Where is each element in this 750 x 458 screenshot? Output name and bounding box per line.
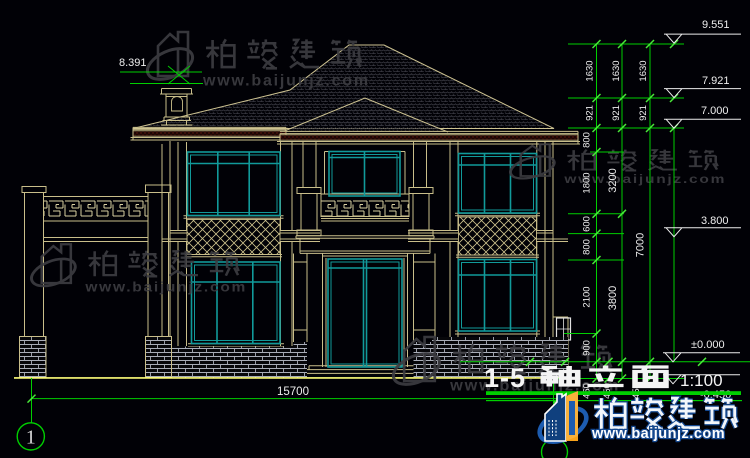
svg-text:921: 921 xyxy=(611,105,622,121)
svg-text:±0.000: ±0.000 xyxy=(691,339,725,351)
svg-text:800: 800 xyxy=(582,239,593,255)
svg-text:www.baijunjz.com: www.baijunjz.com xyxy=(591,426,725,442)
svg-text:2100: 2100 xyxy=(582,286,593,307)
svg-text:800: 800 xyxy=(582,132,593,148)
svg-text:1800: 1800 xyxy=(582,172,593,193)
svg-text:900: 900 xyxy=(582,340,593,356)
svg-text:600: 600 xyxy=(582,216,593,232)
svg-text:3.800: 3.800 xyxy=(701,215,729,227)
svg-text:3200: 3200 xyxy=(607,168,619,192)
svg-text:1630: 1630 xyxy=(611,60,622,81)
svg-text:7.921: 7.921 xyxy=(702,75,730,87)
svg-text:7000: 7000 xyxy=(635,233,647,257)
svg-text:1630: 1630 xyxy=(638,60,649,81)
svg-text:15700: 15700 xyxy=(277,386,309,398)
svg-text:921: 921 xyxy=(638,105,649,121)
svg-text:1-5: 1-5 xyxy=(484,363,526,393)
svg-text:9.551: 9.551 xyxy=(702,19,730,31)
svg-text:1:100: 1:100 xyxy=(680,371,723,390)
svg-text:8.391: 8.391 xyxy=(119,57,147,69)
svg-text:7.000: 7.000 xyxy=(701,105,729,117)
svg-text:1630: 1630 xyxy=(585,60,596,81)
svg-text:1: 1 xyxy=(26,427,36,449)
svg-text:921: 921 xyxy=(585,105,596,121)
svg-text:3800: 3800 xyxy=(607,286,619,310)
